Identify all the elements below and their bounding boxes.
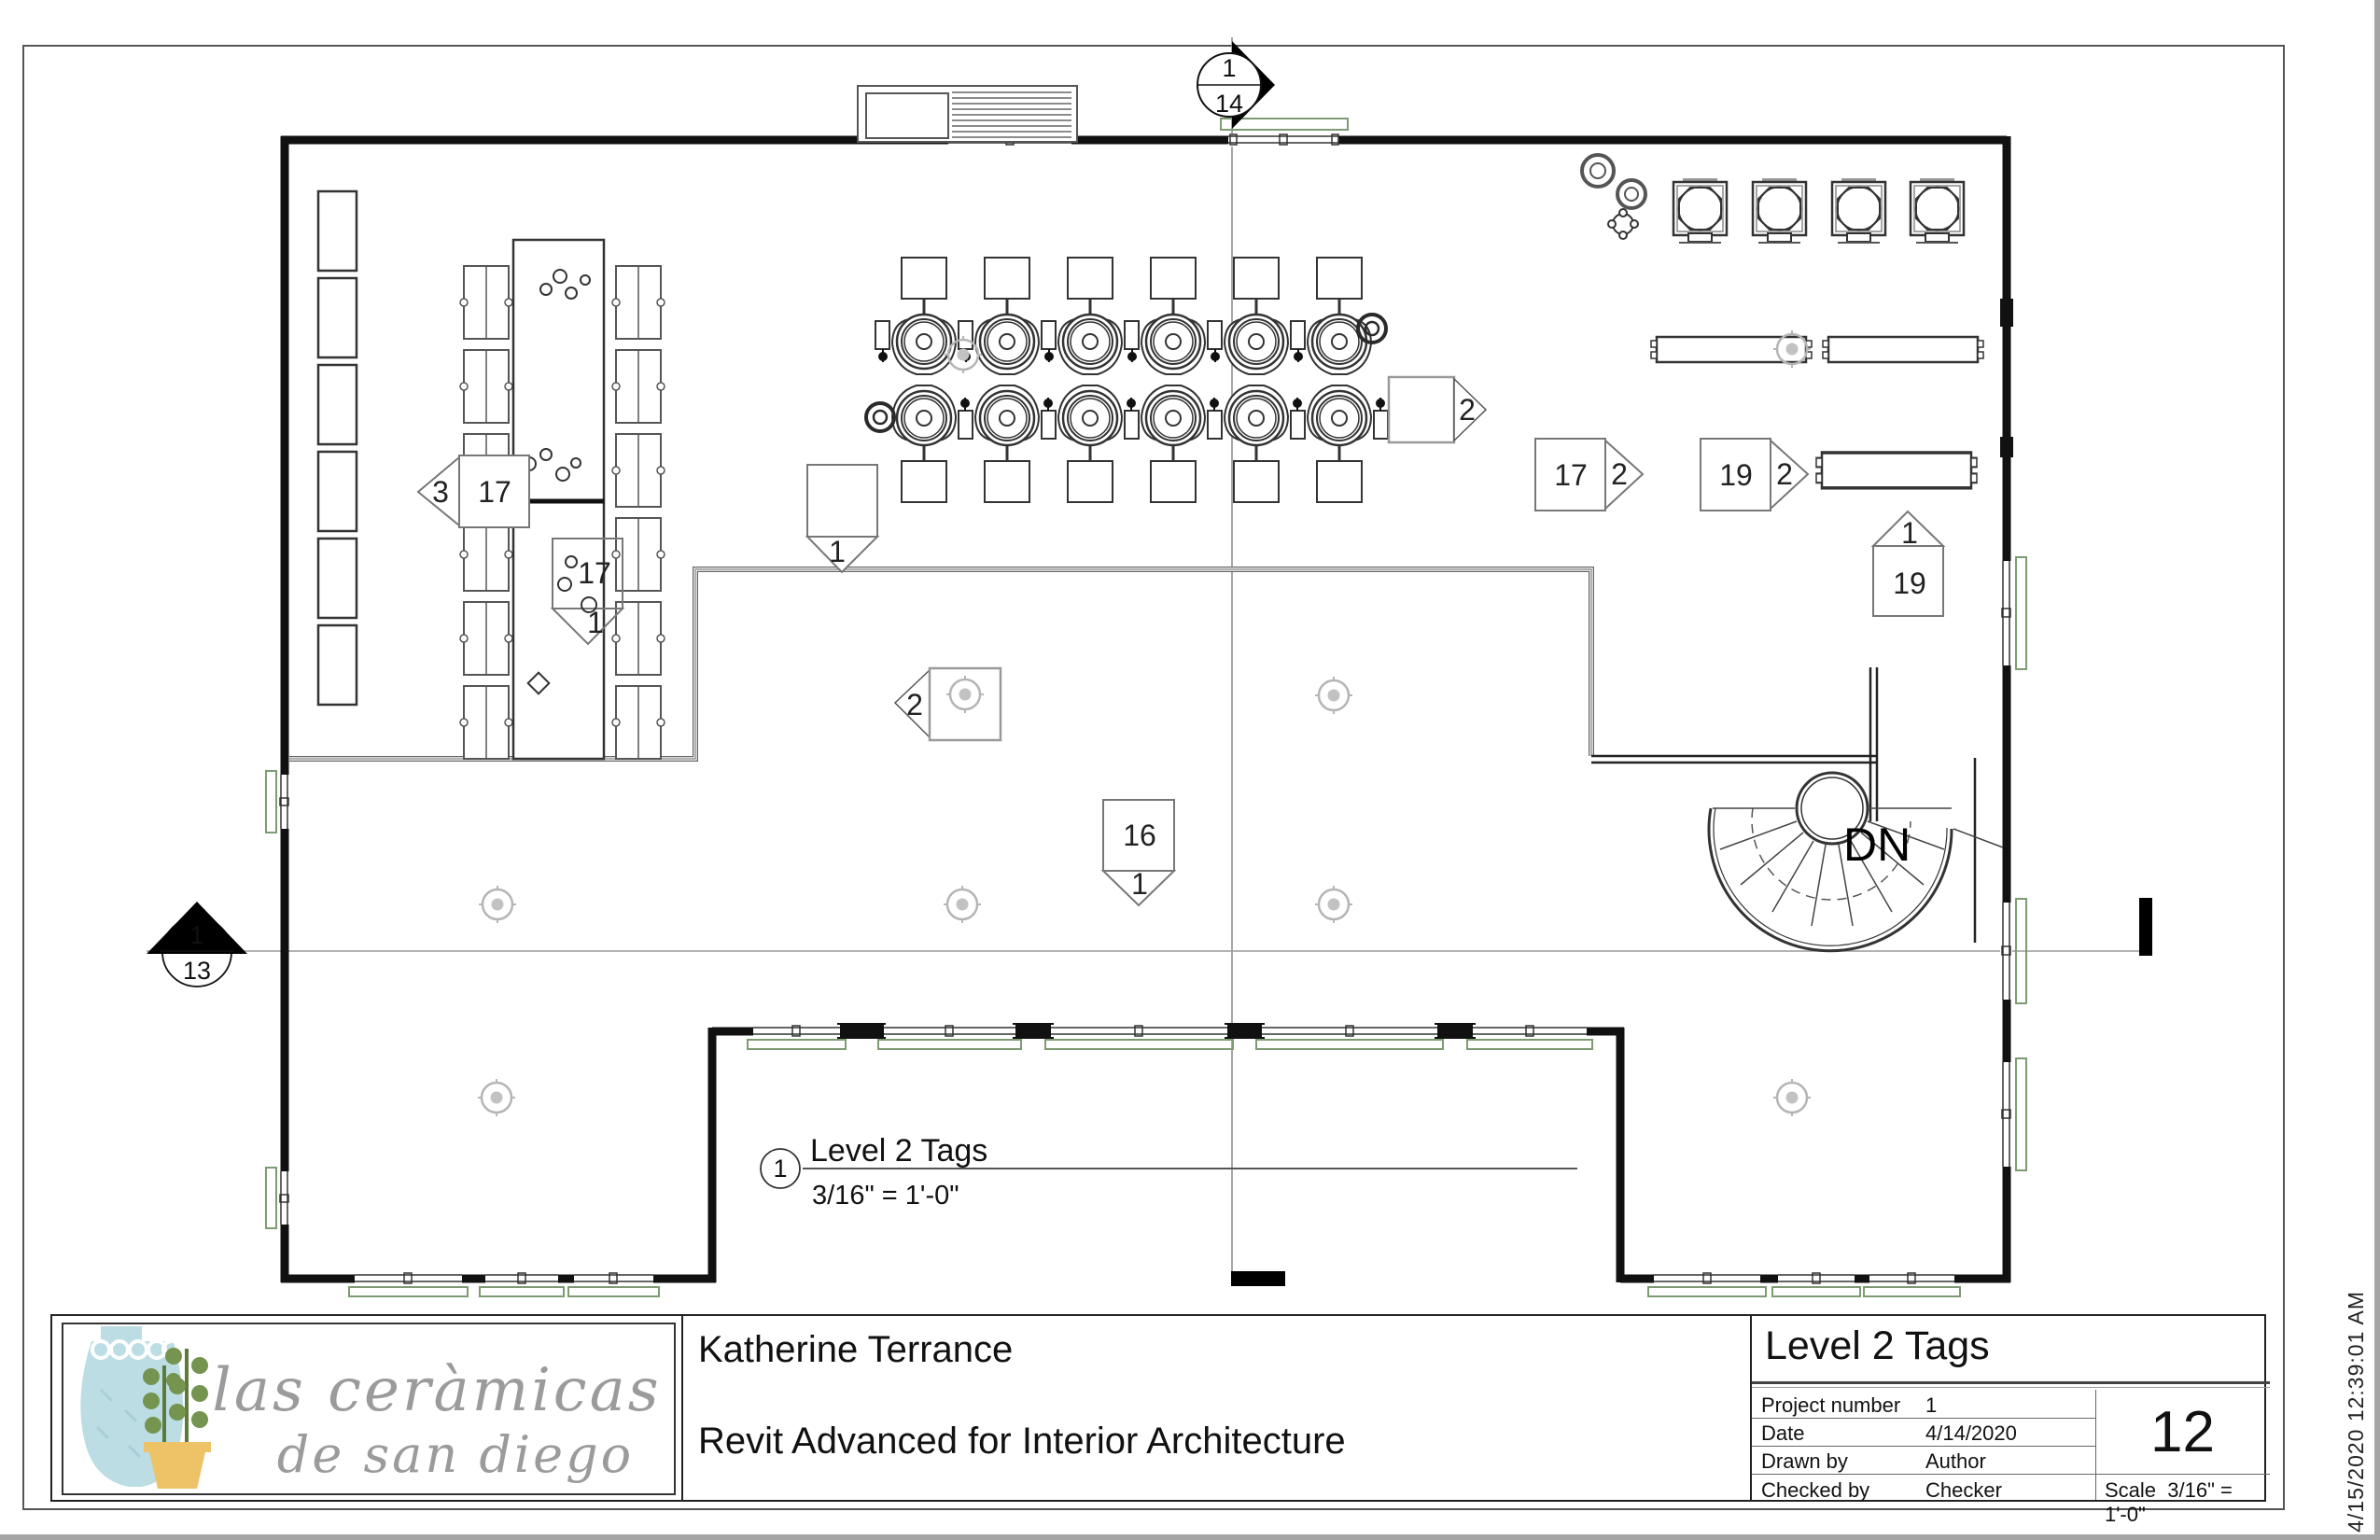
tag-wheels-right[interactable]: 2 (1389, 377, 1486, 442)
spiral-stair: DN (1709, 773, 2003, 951)
title-block: las ceràmicas de san diego Katherine Ter… (50, 1314, 2266, 1502)
divider (1752, 1387, 2270, 1388)
svg-text:2: 2 (1459, 393, 1476, 427)
logo-text-line2: de san diego (277, 1425, 634, 1484)
svg-text:14: 14 (1215, 90, 1243, 118)
svg-text:3: 3 (432, 475, 449, 509)
tag-hall-center[interactable]: 16 1 (1103, 800, 1174, 905)
field-checked-by: Checked by Checker (1752, 1475, 2095, 1503)
field-project-number: Project number 1 (1752, 1390, 2095, 1419)
svg-text:1: 1 (829, 535, 846, 568)
pottery-wheel-stations (866, 258, 1388, 502)
section-marker-left[interactable]: 1 13 (147, 902, 247, 987)
field-drawn-by: Drawn by Author (1752, 1446, 2095, 1475)
svg-text:17: 17 (1554, 458, 1588, 492)
floor-plan: DN (0, 0, 2380, 1540)
company-logo: las ceràmicas de san diego (62, 1323, 676, 1495)
clover-fixture (1608, 209, 1638, 239)
sheet-number[interactable]: 12 (2095, 1390, 2270, 1474)
svg-text:1: 1 (1131, 867, 1148, 901)
svg-text:1: 1 (189, 921, 203, 949)
svg-text:2: 2 (906, 688, 923, 721)
divider (1752, 1381, 2270, 1384)
field-date: Date 4/14/2020 (1752, 1418, 2095, 1447)
svg-text:2: 2 (1776, 457, 1793, 491)
section-marker-top[interactable]: 1 14 (1197, 41, 1275, 129)
svg-text:1: 1 (1901, 516, 1918, 550)
view-title[interactable]: 1 Level 2 Tags 3/16" = 1'-0" (761, 1133, 1577, 1211)
project-info-cell: Katherine Terrance Revit Advanced for In… (681, 1316, 1752, 1500)
stair-dn-label[interactable]: DN (1843, 819, 1911, 871)
entry-vestibule (858, 86, 1077, 142)
logo-text-line1: las ceràmicas (212, 1356, 661, 1425)
sheet-title[interactable]: Level 2 Tags (1765, 1323, 1990, 1369)
svg-text:13: 13 (183, 957, 211, 985)
view-title-text: Level 2 Tags (810, 1133, 987, 1169)
svg-text:17: 17 (478, 475, 511, 509)
svg-text:17: 17 (578, 556, 611, 590)
wall-lockers (318, 191, 357, 705)
project-name[interactable]: Revit Advanced for Interior Architecture (698, 1421, 1346, 1463)
svg-text:1: 1 (1222, 54, 1236, 82)
svg-text:2: 2 (1611, 457, 1628, 491)
svg-text:19: 19 (1719, 458, 1753, 492)
window-edge (2374, 0, 2380, 1540)
stair-walls (1591, 667, 1975, 943)
tag-kiln-area-b[interactable]: 19 2 (1701, 439, 1808, 511)
svg-text:16: 16 (1123, 819, 1156, 852)
client-name[interactable]: Katherine Terrance (698, 1329, 1013, 1371)
tag-shelf-right[interactable]: 1 19 (1873, 511, 1943, 616)
section-line-horizontal[interactable] (147, 898, 2152, 956)
section-line-vertical[interactable] (1231, 37, 1285, 1286)
scale-field: Scale 3/16" = 1'-0" (2105, 1478, 2270, 1527)
tag-shelf-left[interactable]: 3 17 (418, 455, 529, 527)
divider (1752, 1474, 2270, 1475)
tag-room-boundary[interactable]: 1 (807, 465, 877, 572)
print-timestamp: 4/15/2020 12:39:01 AM (2344, 1291, 2369, 1533)
tag-kiln-area-a[interactable]: 17 2 (1535, 439, 1643, 511)
logo-graphic: las ceràmicas de san diego (63, 1324, 670, 1490)
svg-text:19: 19 (1893, 567, 1926, 600)
svg-text:1: 1 (773, 1155, 787, 1183)
window-edge (0, 1534, 2380, 1540)
view-scale-text: 3/16" = 1'-0" (812, 1181, 959, 1211)
drawing-sheet: DN (0, 0, 2380, 1540)
svg-text:1: 1 (587, 606, 604, 639)
logo-cell: las ceràmicas de san diego (52, 1316, 681, 1500)
tag-room-left[interactable]: 2 (895, 668, 1001, 740)
sheet-info-cell: Level 2 Tags Project number 1 Date 4/14/… (1750, 1316, 2270, 1500)
sinks (1582, 155, 1645, 239)
kilns (1673, 178, 1964, 243)
